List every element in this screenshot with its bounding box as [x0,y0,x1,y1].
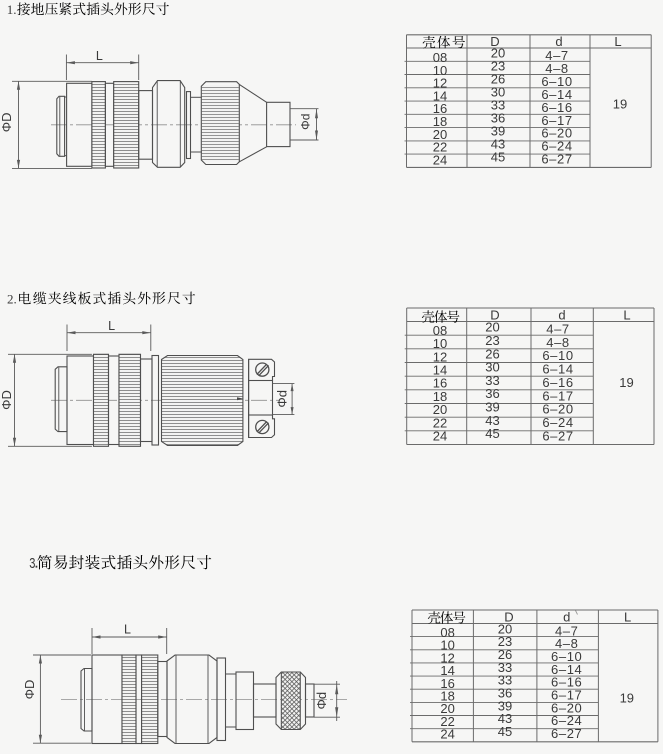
svg-text:d: d [558,308,565,323]
svg-text:d: d [555,34,562,49]
svg-text:L: L [124,623,131,637]
svg-text:19: 19 [619,375,633,390]
svg-text:2.: 2. [7,291,17,306]
svg-text:Φd: Φd [314,692,329,710]
svg-text:d: d [563,610,570,625]
svg-text:45: 45 [491,150,505,165]
svg-text:3: 3 [29,554,35,571]
svg-text:6–27: 6–27 [541,152,572,167]
svg-text:19: 19 [620,690,634,705]
svg-text:L: L [96,49,103,63]
svg-text:L: L [108,319,115,333]
svg-text:6–27: 6–27 [542,428,573,443]
svg-text:Φd: Φd [299,114,313,130]
svg-text:L: L [624,610,631,625]
svg-text:L: L [614,34,621,49]
svg-text:ΦD: ΦD [0,112,14,132]
svg-text:45: 45 [485,426,499,441]
svg-text:45: 45 [498,724,512,739]
svg-text:24: 24 [433,429,447,444]
svg-text:ΦD: ΦD [0,390,14,410]
svg-text:ΦD: ΦD [22,680,37,700]
svg-text:24: 24 [433,153,447,168]
svg-text:1.: 1. [7,2,17,17]
svg-text:19: 19 [613,97,627,112]
svg-text:24: 24 [440,726,454,741]
svg-text:Φd: Φd [274,390,289,408]
svg-text:6–27: 6–27 [551,726,582,741]
svg-text:L: L [623,308,630,323]
